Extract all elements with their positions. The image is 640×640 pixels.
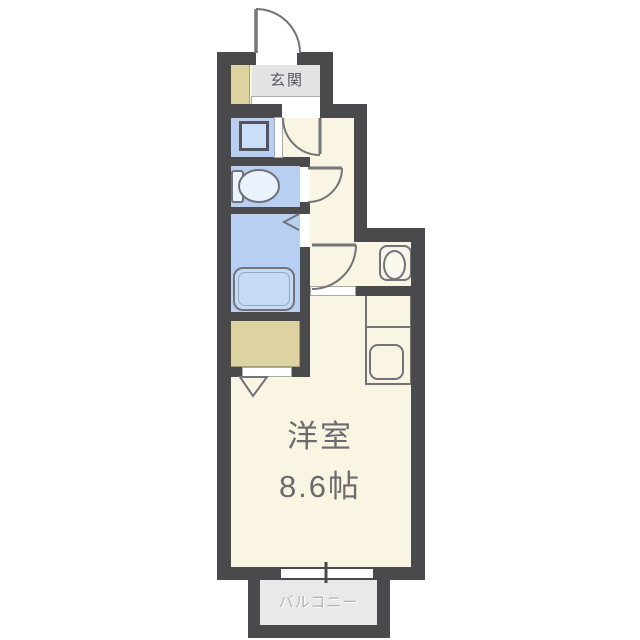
symbols-overlay	[0, 0, 640, 640]
entrance-label: 玄関	[252, 62, 322, 96]
main-room-name: 洋室	[240, 412, 400, 462]
closet-door-icon	[240, 377, 267, 396]
toilet-icon	[232, 170, 279, 202]
toilet-door-icon	[308, 168, 342, 202]
bathroom-door-icon	[284, 214, 299, 230]
hall-door-icon	[283, 118, 320, 155]
main-room-door-icon	[312, 245, 356, 289]
floorplan: 玄関 洋室 8.6帖 バルコニー	[0, 0, 640, 640]
main-room-label: 洋室 8.6帖	[240, 412, 400, 511]
entrance-door-icon	[256, 9, 300, 53]
main-room-size: 8.6帖	[240, 462, 400, 512]
balcony-label: バルコニー	[260, 578, 377, 625]
